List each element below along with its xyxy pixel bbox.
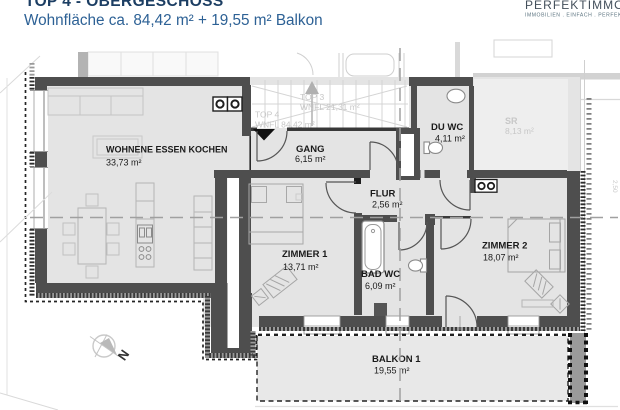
svg-text:2,50: 2,50 <box>611 180 618 193</box>
svg-text:WOHNENE ESSEN KOCHEN: WOHNENE ESSEN KOCHEN <box>106 145 228 155</box>
svg-text:ZIMMER 1: ZIMMER 1 <box>282 249 328 260</box>
svg-text:ZIMMER 2: ZIMMER 2 <box>482 241 527 252</box>
svg-text:19,55 m²: 19,55 m² <box>374 366 410 376</box>
svg-text:6,15 m²: 6,15 m² <box>295 154 326 164</box>
svg-text:TOP 3: TOP 3 <box>300 92 325 102</box>
svg-text:13,71 m²: 13,71 m² <box>283 262 319 272</box>
svg-text:SR: SR <box>505 116 518 126</box>
svg-text:BALKON 1: BALKON 1 <box>372 354 421 365</box>
svg-text:PERFEKTIMMO: PERFEKTIMMO <box>525 0 620 12</box>
svg-text:WNFL 21,31 m²: WNFL 21,31 m² <box>300 102 360 112</box>
svg-text:IMMOBILIEN . EINFACH . PERFEKT: IMMOBILIEN . EINFACH . PERFEKT <box>525 13 620 19</box>
svg-text:FLUR: FLUR <box>370 189 395 200</box>
svg-text:DU WC: DU WC <box>431 122 463 133</box>
svg-text:6,09 m²: 6,09 m² <box>365 281 396 291</box>
svg-text:18,07 m²: 18,07 m² <box>483 253 519 263</box>
svg-text:TOP 4: TOP 4 <box>255 110 280 120</box>
svg-text:BAD WC: BAD WC <box>361 269 400 280</box>
svg-text:Wohnfläche ca. 84,42 m² + 19,5: Wohnfläche ca. 84,42 m² + 19,55 m² Balko… <box>24 12 323 29</box>
svg-text:TOP 4 - OBERGESCHOSS: TOP 4 - OBERGESCHOSS <box>25 0 224 10</box>
svg-text:4,11 m²: 4,11 m² <box>435 134 465 144</box>
svg-text:33,73 m²: 33,73 m² <box>106 158 142 168</box>
svg-text:8,13 m²: 8,13 m² <box>505 126 534 136</box>
svg-text:2,56 m²: 2,56 m² <box>372 200 403 210</box>
